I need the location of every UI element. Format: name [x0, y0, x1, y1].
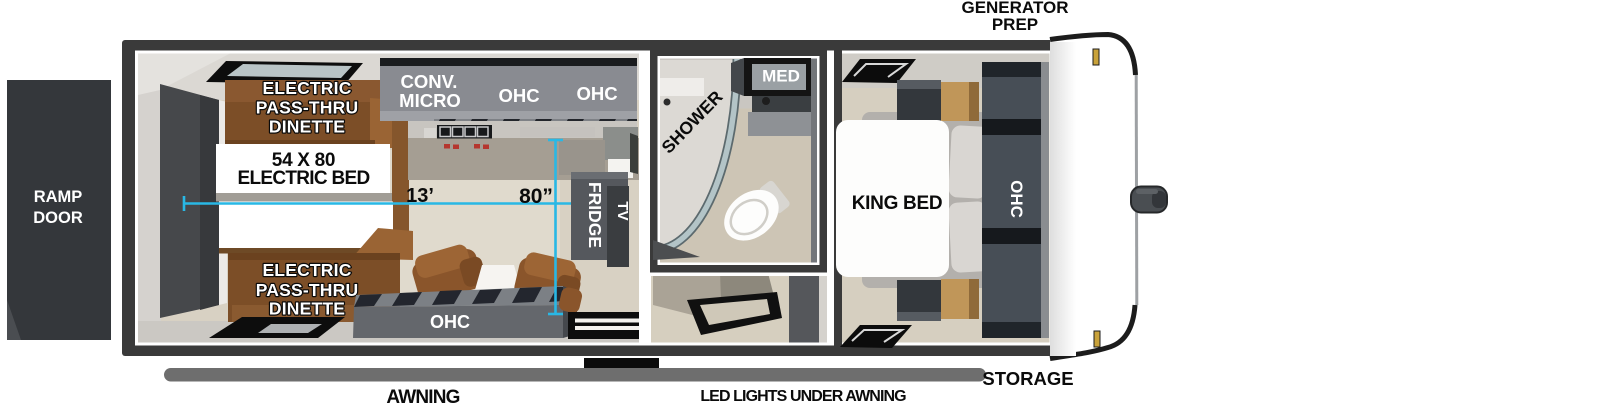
- svg-text:MED: MED: [762, 67, 800, 86]
- svg-text:RAMP: RAMP: [34, 188, 83, 206]
- svg-text:PASS-THRU: PASS-THRU: [256, 280, 359, 300]
- svg-text:TV: TV: [614, 201, 631, 220]
- svg-text:80”: 80”: [519, 185, 553, 208]
- svg-text:LED LIGHTS UNDER AWNING: LED LIGHTS UNDER AWNING: [700, 388, 906, 404]
- svg-text:ELECTRIC: ELECTRIC: [262, 78, 351, 98]
- svg-text:OHC: OHC: [498, 85, 539, 106]
- svg-text:OHC: OHC: [1007, 180, 1026, 218]
- svg-text:OHC: OHC: [430, 312, 470, 332]
- svg-text:PASS-THRU: PASS-THRU: [256, 98, 359, 118]
- svg-text:AWNING: AWNING: [386, 387, 459, 404]
- svg-text:FRIDGE: FRIDGE: [585, 182, 605, 248]
- svg-text:OHC: OHC: [576, 83, 617, 104]
- svg-text:MICRO: MICRO: [399, 90, 461, 111]
- svg-text:ELECTRIC: ELECTRIC: [262, 260, 351, 280]
- svg-text:DOOR: DOOR: [33, 209, 83, 227]
- svg-text:STORAGE: STORAGE: [982, 368, 1073, 389]
- svg-text:ELECTRIC BED: ELECTRIC BED: [238, 168, 370, 189]
- svg-text:KING BED: KING BED: [852, 193, 943, 214]
- svg-text:PREP: PREP: [992, 15, 1038, 34]
- svg-text:DINETTE: DINETTE: [269, 117, 345, 137]
- svg-text:DINETTE: DINETTE: [269, 299, 345, 319]
- svg-text:13’: 13’: [406, 185, 434, 207]
- svg-text:CONV.: CONV.: [401, 71, 458, 92]
